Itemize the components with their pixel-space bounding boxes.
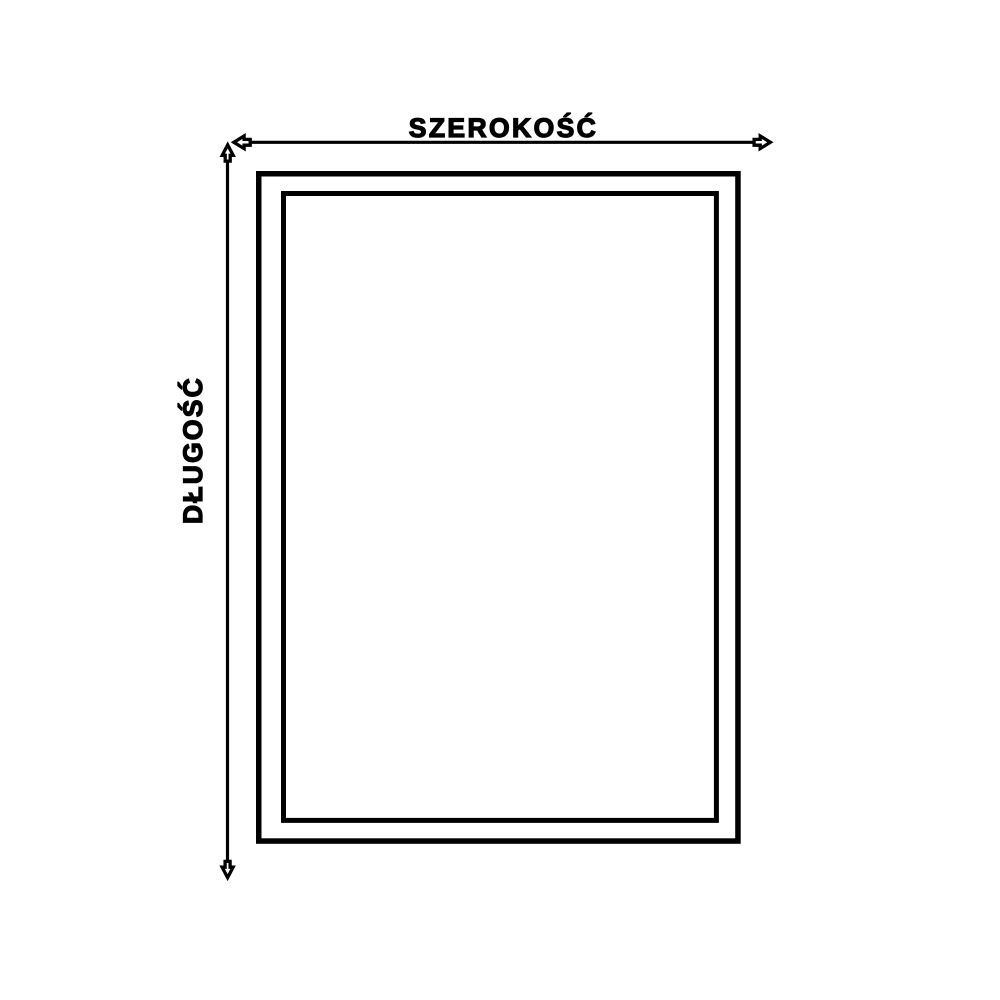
- svg-text:DŁUGOŚĆ: DŁUGOŚĆ: [178, 376, 208, 524]
- svg-text:SZEROKOŚĆ: SZEROKOŚĆ: [409, 113, 598, 143]
